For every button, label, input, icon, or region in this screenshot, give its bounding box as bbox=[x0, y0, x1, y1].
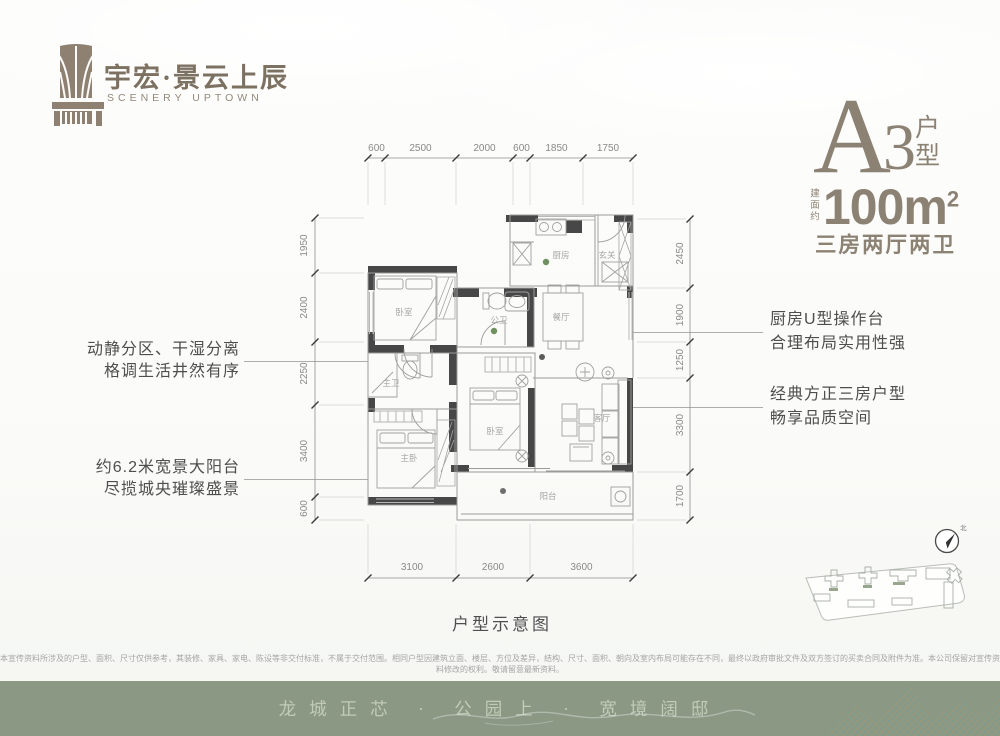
room-label: 厨房 bbox=[552, 250, 569, 260]
dim-value: 3300 bbox=[675, 413, 686, 436]
area-number: 100m bbox=[823, 179, 947, 235]
dim-value: 2600 bbox=[482, 562, 505, 573]
north-label: 北 bbox=[960, 524, 967, 532]
room-label: 餐厅 bbox=[552, 312, 570, 322]
logo-name-en: SCENERY UPTOWN bbox=[107, 92, 263, 104]
room-label: 玄关 bbox=[598, 250, 616, 260]
dim-right: 24501900125033001700 bbox=[637, 216, 694, 524]
dim-value: 2450 bbox=[675, 242, 686, 265]
room-label: 阳台 bbox=[539, 491, 556, 501]
script-watermark bbox=[425, 703, 765, 729]
dim-value: 2250 bbox=[299, 362, 310, 385]
plan-wardrobes bbox=[374, 222, 631, 486]
room-label: 卧室 bbox=[486, 426, 504, 436]
annotation-line: 格调生活井然有序 bbox=[68, 361, 240, 383]
plan-caption: 户型示意图 bbox=[352, 610, 652, 635]
unit-rooms-line: 三房两厅两卫 bbox=[815, 228, 956, 259]
dim-value: 1250 bbox=[675, 348, 686, 371]
floorplan-svg: 6002500200060018501750310026003600195024… bbox=[298, 138, 722, 602]
unit-letter: A bbox=[813, 88, 891, 185]
annotation-left-2: 约6.2米宽景大阳台 尽揽城央璀璨盛景 bbox=[68, 457, 240, 501]
room-label: 卧室 bbox=[395, 307, 413, 317]
disclaimer-text: 本宣传资料所涉及的户型、面积、尺寸仅供参考，其装修、家具、家电、陈设等非交付标准… bbox=[0, 653, 1000, 675]
annotation-line: 厨房U型操作台 bbox=[770, 308, 980, 332]
annotation-left-1: 动静分区、干湿分离 格调生活井然有序 bbox=[68, 339, 240, 383]
dim-value: 600 bbox=[368, 143, 385, 154]
dim-top: 6002500200060018501750 bbox=[365, 143, 637, 205]
dim-value: 1750 bbox=[597, 143, 620, 154]
dim-value: 600 bbox=[299, 500, 310, 517]
dim-value: 3400 bbox=[299, 439, 310, 462]
room-label: 主卧 bbox=[400, 453, 418, 463]
room-label: 客厅 bbox=[593, 413, 611, 423]
dim-left: 1950240022503400600 bbox=[299, 215, 364, 524]
dim-value: 1950 bbox=[299, 234, 310, 257]
dim-value: 2500 bbox=[409, 143, 432, 154]
dim-value: 1850 bbox=[545, 143, 568, 154]
annotation-line: 经典方正三房户型 bbox=[770, 383, 980, 407]
unit-type-char-2: 型 bbox=[915, 143, 940, 171]
annotation-right-2: 经典方正三房户型 畅享品质空间 bbox=[770, 383, 980, 431]
dim-value: 1900 bbox=[675, 303, 686, 326]
annotation-line: 合理布局实用性强 bbox=[770, 332, 980, 356]
dim-value: 2400 bbox=[299, 296, 310, 319]
unit-area-row: 建面约 100m2 bbox=[806, 182, 958, 232]
area-superscript: 2 bbox=[947, 186, 958, 211]
dim-value: 2000 bbox=[473, 143, 496, 154]
logo-building-icon bbox=[46, 42, 108, 128]
footer-band: 龙城正芯 · 公园上 · 宽境阔邸 bbox=[0, 681, 1000, 736]
dim-value: 3100 bbox=[401, 562, 424, 573]
area-prefix: 建面约 bbox=[806, 188, 820, 228]
unit-number: 3 bbox=[883, 118, 916, 177]
plan-dimension-chains: 6002500200060018501750310026003600195024… bbox=[299, 143, 694, 582]
logo-name-cn: 宇宏·景云上辰 bbox=[104, 56, 289, 95]
dim-bottom: 310026003600 bbox=[365, 524, 637, 582]
room-label: 主卫 bbox=[382, 378, 400, 388]
annotation-line: 动静分区、干湿分离 bbox=[68, 339, 240, 361]
site-plan-map bbox=[796, 556, 982, 632]
annotation-line: 畅享品质空间 bbox=[770, 407, 980, 431]
area-value: 100m2 bbox=[823, 182, 958, 232]
unit-type-char-1: 户 bbox=[915, 115, 940, 143]
dim-value: 3600 bbox=[570, 562, 593, 573]
dim-value: 1700 bbox=[675, 484, 686, 507]
annotation-line: 约6.2米宽景大阳台 bbox=[68, 457, 240, 479]
room-label: 公卫 bbox=[490, 315, 508, 325]
annotation-line: 尽揽城央璀璨盛景 bbox=[68, 479, 240, 501]
poster-page: 宇宏·景云上辰 SCENERY UPTOWN A 3 户 型 建面约 100m2… bbox=[0, 0, 1000, 736]
annotation-right-1: 厨房U型操作台 合理布局实用性强 bbox=[770, 308, 980, 356]
dim-value: 600 bbox=[513, 143, 530, 154]
